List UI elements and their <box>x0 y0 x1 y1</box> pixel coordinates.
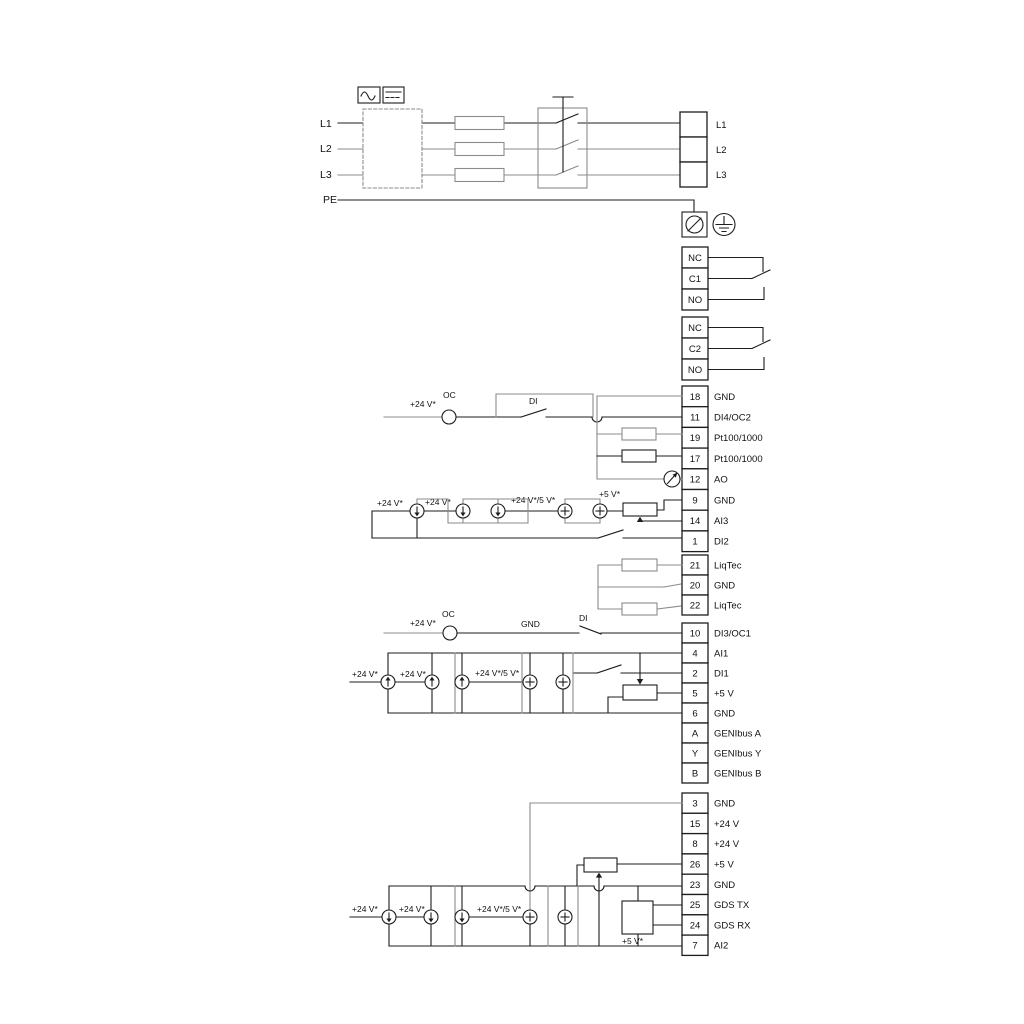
current-source-icon <box>382 910 396 924</box>
gds-sensor-box <box>622 901 653 934</box>
terminal-label: AI2 <box>714 941 728 952</box>
terminal-label: AI3 <box>714 516 728 527</box>
terminal-label: GENIbus A <box>714 729 762 740</box>
output-label-l2: L2 <box>716 145 727 156</box>
plus24-5v-label: +24 V*/5 V* <box>475 668 520 678</box>
terminal-row-10: 10DI3/OC1 <box>682 623 751 643</box>
terminal-row-25: 25GDS TX <box>682 895 750 915</box>
fuse-l2 <box>455 143 504 156</box>
voltage-source-icon <box>558 504 572 518</box>
liqtec-sensor-resistor <box>622 603 657 615</box>
terminal-row-19: 19Pt100/1000 <box>682 427 763 448</box>
voltage-source-icon <box>556 675 570 689</box>
pt-sensor-resistor <box>622 428 656 440</box>
main-switch <box>538 97 587 188</box>
pt-sensor-resistor <box>622 450 656 462</box>
di-function-box <box>496 394 593 417</box>
pe-screw-terminal-icon <box>682 212 707 237</box>
terminal-row-b: BGENIbus B <box>682 763 762 783</box>
terminal-number: 14 <box>690 516 701 527</box>
current-source-icon <box>425 675 439 689</box>
terminal-number: Y <box>692 749 699 760</box>
wiring-diagram: L1 L2 L3 PE L1 L2 L3 NC C1 NO NC C2 NO <box>0 0 1024 1024</box>
terminal-label: AI1 <box>714 649 728 660</box>
gnd-label: GND <box>521 619 540 629</box>
terminal-cell-l2 <box>680 137 707 162</box>
current-source-icon <box>424 910 438 924</box>
terminal-label: Pt100/1000 <box>714 454 763 465</box>
relay1-c1: C1 <box>689 274 701 285</box>
terminal-label: LiqTec <box>714 601 742 612</box>
plus24-label: +24 V* <box>400 669 426 679</box>
terminal-number: 5 <box>692 689 697 700</box>
input-label-l3: L3 <box>320 169 332 181</box>
terminal-row-9: 9GND <box>682 490 735 511</box>
converter-symbols <box>358 87 404 103</box>
terminal-label: GND <box>714 581 735 592</box>
terminal-label: LiqTec <box>714 561 742 572</box>
terminal-row-14: 14AI3 <box>682 510 728 531</box>
voltage-source-icon <box>558 910 572 924</box>
di-label: DI <box>529 396 538 406</box>
terminal-row-26: 26+5 V <box>682 854 734 874</box>
terminal-label: GENIbus Y <box>714 749 762 760</box>
relay1-block: NC C1 NO <box>682 247 770 310</box>
voltage-source-icon <box>523 675 537 689</box>
plus24-label: +24 V* <box>352 904 378 914</box>
terminal-label: Pt100/1000 <box>714 433 763 444</box>
terminal-row-3: 3GND <box>682 793 735 813</box>
terminal-label: GND <box>714 709 735 720</box>
output-label-l1: L1 <box>716 120 727 131</box>
io-block1: 18GND 11DI4/OC2 19Pt100/1000 17Pt100/100… <box>682 386 763 552</box>
input-label-pe: PE <box>323 194 337 206</box>
ai1-source-group: +24 V* +24 V* +24 V*/5 V* <box>350 653 682 713</box>
terminal-row-22: 22LiqTec <box>682 595 742 615</box>
terminal-cell-l1 <box>680 112 707 137</box>
terminal-label: +5 V <box>714 860 734 871</box>
terminal-number: 21 <box>690 561 701 572</box>
relay2-no: NO <box>688 365 702 376</box>
terminal-row-4: 4AI1 <box>682 643 728 663</box>
current-source-icon <box>455 910 469 924</box>
plus24-label: +24 V* <box>352 669 378 679</box>
di-contact-arm <box>521 409 546 417</box>
terminal-number: 15 <box>690 819 701 830</box>
plus24-label: +24 V* <box>410 399 436 409</box>
terminal-number: 1 <box>692 537 697 548</box>
current-source-icon <box>455 675 469 689</box>
relay1-contact-wires <box>708 258 764 300</box>
terminal-number: 3 <box>692 799 697 810</box>
relay1-nc: NC <box>688 253 702 264</box>
terminal-label: GND <box>714 392 735 403</box>
terminal-row-2: 2DI1 <box>682 663 729 683</box>
terminal-number: 2 <box>692 669 697 680</box>
fuse-l1 <box>455 117 504 130</box>
potentiometer <box>623 685 657 700</box>
current-source-icon <box>410 504 424 518</box>
potentiometer <box>584 858 617 872</box>
mains-terminal-block: L1 L2 L3 <box>680 112 727 187</box>
plus24-5v-label: +24 V*/5 V* <box>511 495 556 505</box>
open-collector-icon <box>443 626 457 640</box>
terminal-label: DI1 <box>714 669 729 680</box>
terminal-number: 20 <box>690 581 701 592</box>
di-label: DI <box>579 613 588 623</box>
voltage-source-icon <box>523 910 537 924</box>
plus5-label: +5 V* <box>599 489 621 499</box>
terminal-cell-l3 <box>680 162 707 187</box>
wiper-arrow-icon <box>637 679 643 685</box>
terminal-label: +24 V <box>714 819 740 830</box>
terminal-number: 25 <box>690 900 701 911</box>
oc-label: OC <box>443 390 456 400</box>
terminal-row-17: 17Pt100/1000 <box>682 448 763 469</box>
ai2-gds-circuit: +24 V* +24 V* +24 V*/5 V* +5 V* <box>350 803 682 946</box>
terminal-row-21: 21LiqTec <box>682 555 742 575</box>
open-collector-icon <box>442 410 456 424</box>
plus24-label: +24 V* <box>377 498 403 508</box>
terminal-label: GDS RX <box>714 920 751 931</box>
relay2-c2: C2 <box>689 344 701 355</box>
output-label-l3: L3 <box>716 170 727 181</box>
plus24-label: +24 V* <box>399 904 425 914</box>
analog-output-meter-icon <box>664 471 680 487</box>
relay2-nc: NC <box>688 323 702 334</box>
terminal-number: B <box>692 769 698 780</box>
terminal-row-8: 8+24 V <box>682 834 740 854</box>
terminal-number: 9 <box>692 495 697 506</box>
terminal-row-23: 23GND <box>682 874 735 894</box>
terminal-row-11: 11DI4/OC2 <box>682 407 751 428</box>
io-block2: 21LiqTec 20GND 22LiqTec <box>682 555 742 615</box>
terminal-row-5: 5+5 V <box>682 683 734 703</box>
dc-symbol-box <box>383 87 404 103</box>
oc-label: OC <box>442 609 455 619</box>
input-label-l1: L1 <box>320 118 332 130</box>
di-contact-arm <box>580 626 601 634</box>
io-block4: 3GND 15+24 V 8+24 V 26+5 V 23GND 25GDS T… <box>682 793 751 955</box>
di2-contact-arm <box>598 530 623 538</box>
terminal-label: DI2 <box>714 537 729 548</box>
terminal-row-7: 7AI2 <box>682 935 728 955</box>
terminal-number: 18 <box>690 392 701 403</box>
terminal-number: A <box>692 729 699 740</box>
relay1-contact-arm <box>752 270 770 279</box>
io-block3: 10DI3/OC1 4AI1 2DI1 5+5 V 6GND AGENIbus … <box>682 623 762 783</box>
plus5-label: +5 V* <box>622 936 644 946</box>
potentiometer <box>623 503 657 516</box>
terminal-number: 23 <box>690 880 701 891</box>
terminal-label: GND <box>714 495 735 506</box>
voltage-source-icon <box>593 504 607 518</box>
relay2-contact-wires <box>708 328 764 370</box>
relay2-block: NC C2 NO <box>682 317 770 380</box>
relay1-no: NO <box>688 295 702 306</box>
terminal-label: GDS TX <box>714 900 750 911</box>
terminal-number: 26 <box>690 860 701 871</box>
terminal-number: 22 <box>690 601 701 612</box>
terminal-row-a: AGENIbus A <box>682 723 762 743</box>
phase-wires <box>338 114 694 212</box>
terminal-label: GENIbus B <box>714 769 762 780</box>
terminal-row-24: 24GDS RX <box>682 915 751 935</box>
terminal-row-15: 15+24 V <box>682 813 740 833</box>
terminal-number: 12 <box>690 475 701 486</box>
terminal-number: 7 <box>692 941 697 952</box>
liqtec-sensor-resistor <box>622 559 657 571</box>
terminal-label: GND <box>714 880 735 891</box>
plus24-label: +24 V* <box>410 618 436 628</box>
liqtec-sensor-circuit <box>598 559 682 615</box>
schematic-canvas: L1 L2 L3 PE L1 L2 L3 NC C1 NO NC C2 NO <box>0 0 1024 1024</box>
power-input-labels: L1 L2 L3 PE <box>320 118 337 206</box>
terminal-row-6: 6GND <box>682 703 735 723</box>
current-source-icon <box>491 504 505 518</box>
terminal-row-12: 12AO <box>682 469 728 490</box>
terminal-row-18: 18GND <box>682 386 735 407</box>
current-source-icon <box>456 504 470 518</box>
terminal-number: 11 <box>690 413 700 424</box>
ai3-source-group: +24 V* +24 V* +24 V*/5 V* +5 V* <box>372 489 682 538</box>
di4-oc2-circuit: +24 V* OC DI <box>384 390 682 487</box>
terminal-number: 19 <box>690 433 701 444</box>
pe-wire <box>338 200 694 212</box>
terminal-label: DI4/OC2 <box>714 413 751 424</box>
terminal-row-1: 1DI2 <box>682 531 729 552</box>
fuses <box>455 117 504 182</box>
terminal-number: 24 <box>690 920 701 931</box>
terminal-row-y: YGENIbus Y <box>682 743 762 763</box>
terminal-number: 4 <box>692 649 697 660</box>
earth-ground-icon <box>713 214 735 236</box>
terminal-label: AO <box>714 475 728 486</box>
di1-contact-arm <box>597 665 621 673</box>
terminal-label: DI3/OC1 <box>714 629 751 640</box>
emc-filter-box <box>363 109 422 188</box>
plus24-5v-label: +24 V*/5 V* <box>477 904 522 914</box>
terminal-label: +24 V <box>714 839 740 850</box>
terminal-row-20: 20GND <box>682 575 735 595</box>
terminal-label: +5 V <box>714 689 734 700</box>
terminal-label: GND <box>714 799 735 810</box>
terminal-number: 6 <box>692 709 697 720</box>
fuse-l3 <box>455 169 504 182</box>
terminal-number: 8 <box>692 839 697 850</box>
input-label-l2: L2 <box>320 143 332 155</box>
relay2-contact-arm <box>752 340 770 349</box>
current-source-icon <box>381 675 395 689</box>
terminal-number: 17 <box>690 454 701 465</box>
terminal-number: 10 <box>690 629 701 640</box>
